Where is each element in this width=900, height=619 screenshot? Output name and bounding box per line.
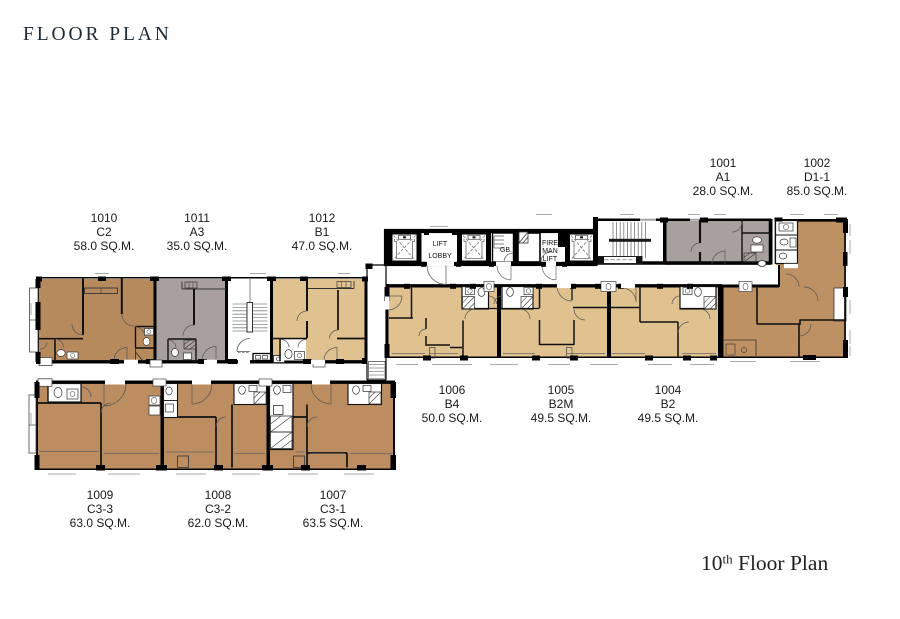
svg-text:49.5 SQ.M.: 49.5 SQ.M. [638, 411, 699, 425]
svg-text:1009: 1009 [87, 488, 114, 502]
svg-text:50.0 SQ.M.: 50.0 SQ.M. [422, 411, 483, 425]
svg-text:63.0 SQ.M.: 63.0 SQ.M. [70, 516, 131, 530]
svg-text:LIFT: LIFT [433, 241, 448, 248]
svg-text:62.0 SQ.M.: 62.0 SQ.M. [188, 516, 249, 530]
svg-text:1010: 1010 [91, 211, 118, 225]
svg-text:LOBBY: LOBBY [428, 253, 452, 260]
svg-text:C3-1: C3-1 [320, 502, 346, 516]
svg-text:B2M: B2M [549, 397, 574, 411]
svg-text:A3: A3 [190, 225, 205, 239]
svg-text:1004: 1004 [655, 383, 682, 397]
svg-text:49.5 SQ.M.: 49.5 SQ.M. [531, 411, 592, 425]
svg-text:1006: 1006 [439, 383, 466, 397]
svg-text:B2: B2 [661, 397, 676, 411]
svg-text:FIRE: FIRE [542, 240, 558, 247]
svg-text:47.0 SQ.M.: 47.0 SQ.M. [292, 239, 353, 253]
svg-text:58.0 SQ.M.: 58.0 SQ.M. [74, 239, 135, 253]
svg-text:1002: 1002 [804, 156, 831, 170]
svg-text:28.0 SQ.M.: 28.0 SQ.M. [693, 184, 754, 198]
svg-text:63.5 SQ.M.: 63.5 SQ.M. [303, 516, 364, 530]
svg-text:1007: 1007 [320, 488, 347, 502]
svg-text:35.0 SQ.M.: 35.0 SQ.M. [167, 239, 228, 253]
svg-text:B4: B4 [445, 397, 460, 411]
svg-text:1011: 1011 [184, 211, 210, 225]
svg-text:D1-1: D1-1 [804, 170, 830, 184]
svg-text:B1: B1 [315, 225, 330, 239]
svg-text:MAN: MAN [542, 248, 558, 255]
svg-text:C3-3: C3-3 [87, 502, 113, 516]
svg-text:1012: 1012 [309, 211, 336, 225]
svg-text:C3-2: C3-2 [205, 502, 231, 516]
svg-text:GB.: GB. [500, 247, 512, 254]
svg-text:10th Floor Plan: 10th Floor Plan [701, 551, 828, 575]
svg-text:1005: 1005 [548, 383, 575, 397]
svg-text:FLOOR PLAN: FLOOR PLAN [23, 24, 172, 45]
svg-text:85.0 SQ.M.: 85.0 SQ.M. [787, 184, 848, 198]
svg-text:A1: A1 [716, 170, 731, 184]
svg-text:1008: 1008 [205, 488, 232, 502]
svg-text:C2: C2 [96, 225, 112, 239]
svg-text:1001: 1001 [710, 156, 737, 170]
